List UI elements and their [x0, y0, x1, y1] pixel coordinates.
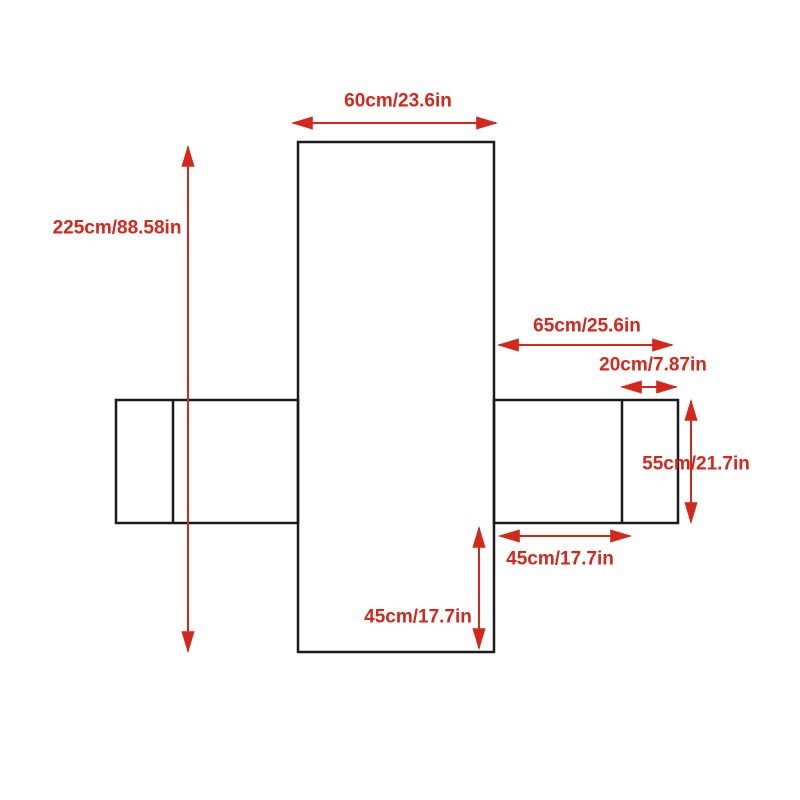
center-panel-outline — [298, 142, 494, 652]
right-flap-width-label: 20cm/7.87in — [599, 356, 707, 375]
total-height-label: 225cm/88.58in — [53, 219, 182, 238]
right-wing-height-label: 55cm/21.7in — [642, 455, 750, 474]
dimension-diagram: 60cm/23.6in 225cm/88.58in 65cm/25.6in 20… — [0, 0, 800, 800]
right-wing-width-label: 65cm/25.6in — [533, 317, 641, 336]
right-wing-bottom-width-label: 45cm/17.7in — [506, 550, 614, 569]
left-wing-outline — [116, 400, 298, 523]
diagram-canvas — [0, 0, 800, 800]
bottom-drop-height-label: 45cm/17.7in — [364, 608, 472, 627]
top-width-label: 60cm/23.6in — [344, 92, 452, 111]
